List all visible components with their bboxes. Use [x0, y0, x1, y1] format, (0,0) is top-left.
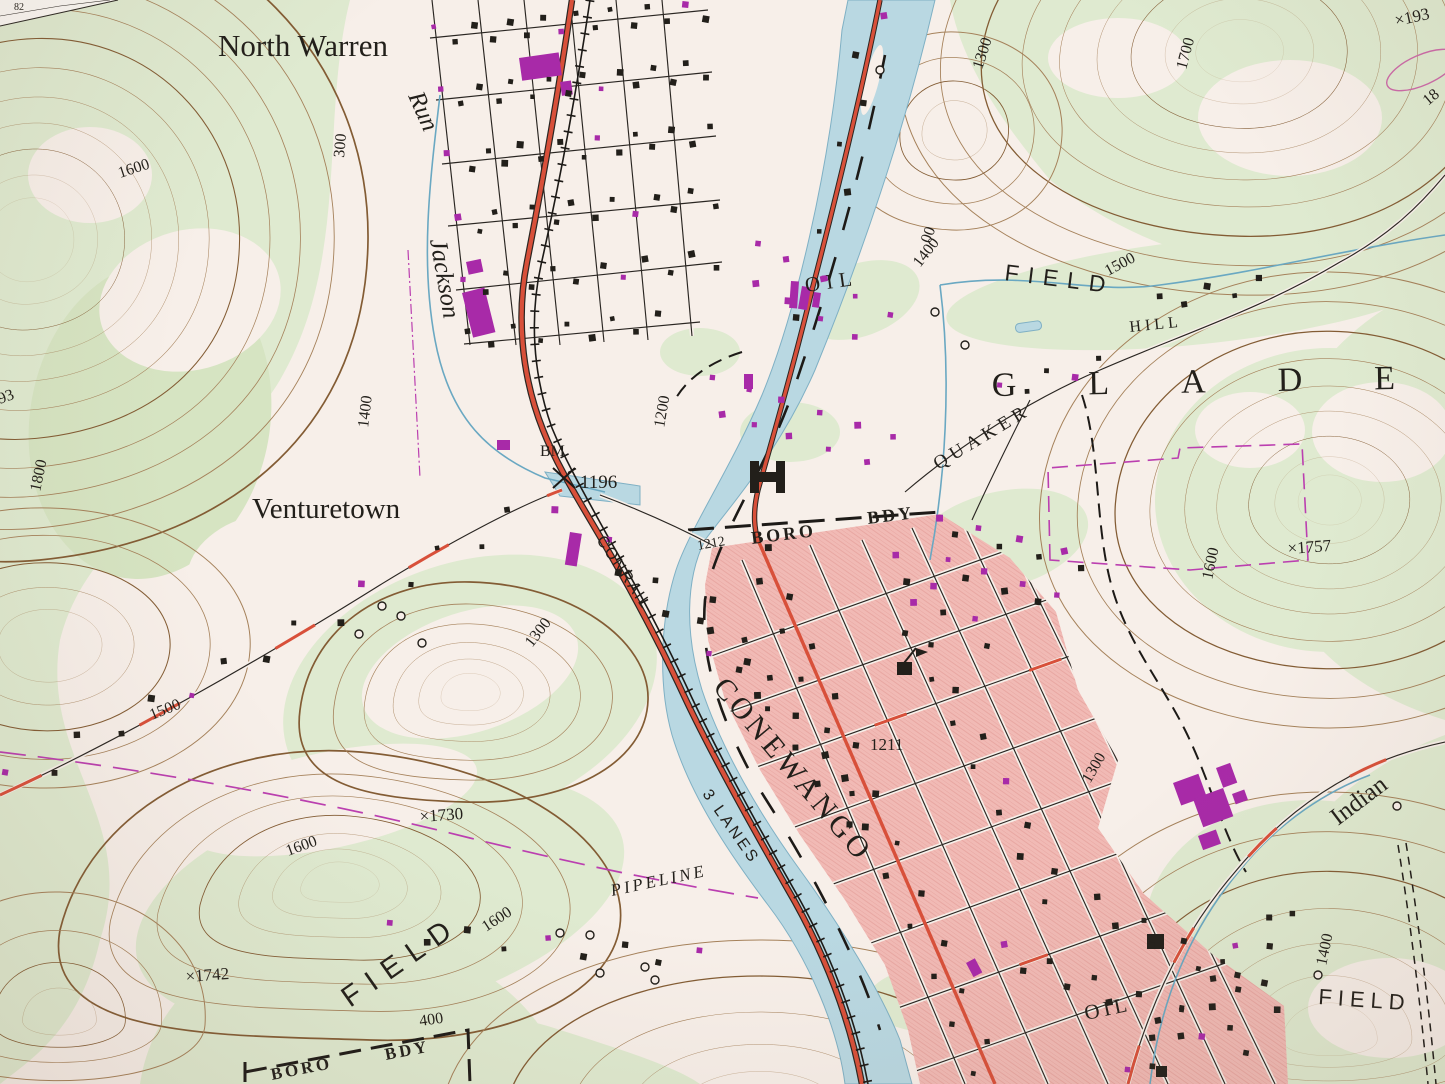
house-square [504, 506, 510, 512]
house-square [971, 764, 976, 769]
house-square [486, 148, 491, 153]
house-square [668, 126, 675, 133]
house-square [490, 36, 497, 43]
house-square [1078, 565, 1084, 571]
house-square [337, 619, 344, 626]
house-square [746, 387, 752, 393]
house-square [580, 953, 588, 961]
house-square [547, 77, 552, 82]
house-square [431, 24, 436, 29]
house-square [821, 751, 829, 759]
house-square [607, 7, 612, 12]
svg-text:×1757: ×1757 [1287, 536, 1332, 558]
house-square [1024, 822, 1031, 829]
house-square [557, 139, 563, 145]
house-square [452, 39, 458, 45]
house-square [633, 329, 639, 335]
house-square [501, 946, 506, 951]
house-square [950, 720, 956, 726]
house-square [818, 316, 824, 322]
house-square [936, 515, 943, 522]
house-square [779, 628, 785, 634]
house-square [852, 334, 858, 340]
house-square [668, 270, 674, 276]
house-square [1196, 966, 1202, 972]
house-square [841, 774, 849, 782]
house-square [703, 75, 709, 81]
house-square [890, 434, 896, 440]
house-square [702, 15, 710, 23]
house-square [1203, 282, 1211, 290]
house-square [1154, 1017, 1161, 1024]
house-square [1220, 959, 1225, 964]
house-square [1180, 938, 1187, 945]
house-square [545, 935, 551, 941]
house-square [743, 658, 751, 666]
house-square [471, 22, 478, 29]
house-square [860, 100, 867, 107]
house-square [492, 209, 498, 215]
house-square [882, 872, 889, 879]
house-square [975, 525, 981, 531]
svg-text:×1742: ×1742 [185, 964, 230, 986]
house-square [687, 188, 693, 194]
house-square [996, 809, 1002, 815]
house-square [454, 213, 462, 221]
house-square [707, 124, 713, 130]
house-square [854, 422, 861, 429]
house-square [1063, 983, 1070, 990]
house-square [644, 4, 650, 10]
house-square [1232, 293, 1237, 298]
house-square [997, 544, 1003, 550]
house-square [1042, 899, 1047, 904]
house-square [1235, 986, 1242, 993]
house-square [610, 316, 615, 321]
house-square [593, 25, 599, 31]
house-square [864, 459, 870, 465]
house-square [554, 219, 560, 225]
house-square [709, 596, 716, 603]
house-square [941, 940, 948, 947]
house-square [503, 270, 509, 276]
house-square [1266, 943, 1273, 950]
house-square [697, 617, 704, 624]
house-square [469, 166, 476, 173]
house-square [622, 941, 629, 948]
house-square [387, 920, 393, 926]
topographic-map-photo: 82 North Warren Venturetown Jackson Run … [0, 0, 1445, 1084]
benchmark-elevation: 1196 [580, 472, 617, 493]
house-square [895, 840, 900, 845]
house-square [649, 144, 655, 150]
house-square [1003, 778, 1009, 784]
house-square [817, 410, 823, 416]
house-square [511, 323, 516, 328]
house-square [1148, 942, 1154, 948]
house-square [1179, 1005, 1185, 1011]
house-square [1232, 943, 1238, 949]
house-square [538, 156, 544, 162]
house-square [1136, 991, 1143, 998]
house-square [513, 223, 518, 228]
house-square [696, 947, 702, 953]
house-square [852, 742, 859, 749]
house-square [1181, 301, 1188, 308]
house-square [959, 988, 965, 994]
house-square [718, 411, 725, 418]
house-square [147, 694, 155, 702]
house-square [464, 926, 471, 933]
house-square [798, 677, 803, 682]
house-square [1149, 1034, 1156, 1041]
house-square [736, 666, 743, 673]
house-square [621, 275, 626, 280]
house-square [1112, 922, 1119, 929]
house-square [483, 289, 489, 295]
svg-text:1211: 1211 [870, 735, 903, 754]
house-square [852, 51, 860, 59]
house-square [1243, 1050, 1249, 1056]
house-square [971, 1071, 976, 1076]
house-square [793, 713, 799, 719]
house-square [631, 22, 638, 29]
house-square [516, 141, 524, 149]
house-square [682, 1, 689, 8]
house-square [1034, 598, 1041, 605]
area-label-glade: GLADE [991, 359, 1445, 404]
house-square [784, 297, 791, 304]
house-square [579, 72, 586, 79]
house-square [617, 69, 624, 76]
house-square [1210, 975, 1217, 982]
house-square [358, 580, 365, 587]
house-square [1096, 356, 1101, 361]
house-square [595, 135, 600, 140]
house-square [930, 583, 937, 590]
house-square [892, 552, 899, 559]
house-square [524, 32, 530, 38]
house-square [683, 60, 689, 66]
house-square [438, 86, 444, 92]
house-square [980, 733, 987, 740]
place-label-north-warren: North Warren [218, 28, 388, 63]
house-square [902, 630, 909, 637]
house-square [853, 294, 858, 299]
house-square [837, 142, 842, 147]
house-square [664, 18, 670, 24]
house-square [616, 149, 622, 155]
house-square [928, 642, 934, 648]
house-square [1256, 275, 1262, 281]
house-square [632, 81, 639, 88]
house-square [756, 578, 763, 585]
house-square [458, 100, 464, 106]
house-square [826, 447, 831, 452]
house-square [540, 15, 546, 21]
house-square [1054, 592, 1060, 598]
house-square [783, 256, 790, 263]
house-square [551, 506, 558, 513]
house-square [752, 280, 759, 287]
house-square [550, 266, 555, 271]
house-square [1198, 1033, 1205, 1040]
house-square [872, 790, 879, 797]
house-square [476, 83, 483, 90]
house-square [538, 338, 543, 343]
house-square [291, 620, 296, 625]
house-square [1000, 941, 1007, 948]
house-square [610, 197, 615, 202]
house-square [832, 693, 839, 700]
house-square [962, 574, 969, 581]
house-square [588, 334, 596, 342]
house-square [952, 687, 959, 694]
house-square [479, 544, 484, 549]
svg-text:400: 400 [418, 1010, 444, 1030]
house-square [118, 730, 124, 736]
house-square [573, 11, 579, 17]
house-square [1274, 1006, 1281, 1013]
house-square [655, 959, 662, 966]
house-square [918, 890, 925, 897]
house-square [460, 277, 465, 282]
house-square [1142, 918, 1147, 923]
house-square [1209, 1003, 1216, 1010]
house-square [714, 265, 720, 271]
house-square [592, 214, 599, 221]
house-square [1001, 587, 1008, 594]
house-square [946, 557, 951, 562]
house-square [408, 582, 413, 587]
house-square [74, 731, 81, 738]
house-square [496, 98, 502, 104]
house-square [1261, 979, 1269, 987]
house-square [662, 610, 670, 618]
house-square [713, 203, 719, 209]
house-square [1290, 911, 1296, 917]
house-square [981, 568, 988, 575]
house-square [880, 12, 888, 20]
house-square [506, 18, 514, 26]
house-square [1060, 547, 1068, 555]
house-square [435, 545, 440, 550]
house-square [1036, 554, 1042, 560]
house-square [972, 616, 978, 622]
house-square [931, 974, 936, 979]
house-square [844, 188, 852, 196]
house-square [1227, 1025, 1233, 1031]
house-square [508, 79, 514, 85]
house-square [565, 90, 572, 97]
house-square [786, 593, 793, 600]
svg-text:×1730: ×1730 [419, 804, 464, 826]
house-square [599, 86, 604, 91]
house-square [1020, 967, 1027, 974]
house-square [567, 199, 574, 206]
corner-grid-number: 82 [14, 2, 24, 13]
house-square [650, 65, 656, 71]
house-square [984, 643, 990, 649]
house-square [984, 1039, 990, 1045]
svg-text:300: 300 [331, 133, 350, 158]
house-square [824, 727, 830, 733]
house-square [1091, 975, 1097, 981]
house-square [600, 262, 607, 269]
house-square [907, 924, 912, 929]
house-square [910, 599, 917, 606]
house-square [706, 627, 714, 635]
house-square [929, 677, 934, 682]
house-square [655, 310, 662, 317]
house-square [529, 204, 534, 209]
house-square [670, 206, 677, 213]
house-square [653, 194, 660, 201]
house-square [501, 160, 508, 167]
house-square [632, 211, 639, 218]
house-square [565, 322, 570, 327]
house-square [887, 312, 893, 318]
house-square [1177, 1032, 1184, 1039]
house-square [2, 769, 9, 776]
house-square [1124, 1067, 1130, 1073]
house-square [1149, 1063, 1155, 1069]
house-square [752, 422, 757, 427]
house-square [741, 637, 748, 644]
house-square [767, 675, 773, 681]
house-square [940, 609, 946, 615]
house-square [755, 240, 761, 246]
house-square [1016, 535, 1024, 543]
house-square [687, 250, 695, 258]
place-label-venturetown: Venturetown [252, 493, 401, 525]
house-square [52, 770, 58, 776]
house-square [220, 658, 227, 665]
house-square [952, 531, 959, 538]
benchmark-label: BM [540, 443, 565, 460]
house-square [488, 341, 495, 348]
house-square [669, 79, 676, 86]
house-square [1266, 915, 1272, 921]
house-square [1094, 893, 1101, 900]
house-square [573, 278, 579, 284]
house-square [1234, 972, 1241, 979]
house-square [582, 155, 587, 160]
house-square [817, 229, 822, 234]
house-square [849, 791, 855, 797]
house-square [1157, 293, 1163, 299]
house-square [1047, 958, 1053, 964]
house-square [477, 229, 482, 234]
house-square [809, 643, 816, 650]
house-square [778, 397, 785, 404]
house-square [633, 132, 638, 137]
house-square [641, 255, 649, 263]
house-square [689, 140, 696, 147]
house-square [530, 94, 535, 99]
house-square [189, 693, 195, 699]
house-square [706, 651, 712, 657]
house-square [903, 578, 910, 585]
house-square [464, 328, 470, 334]
house-square [652, 577, 658, 583]
house-square [786, 433, 793, 440]
house-square [1051, 868, 1058, 875]
house-square [709, 375, 715, 381]
house-square [558, 29, 564, 35]
house-square [1017, 853, 1024, 860]
house-square [1019, 581, 1025, 587]
house-square [444, 150, 450, 156]
house-square [949, 1021, 955, 1027]
house-square [793, 314, 800, 321]
house-square [529, 284, 535, 290]
house-square [263, 655, 271, 663]
